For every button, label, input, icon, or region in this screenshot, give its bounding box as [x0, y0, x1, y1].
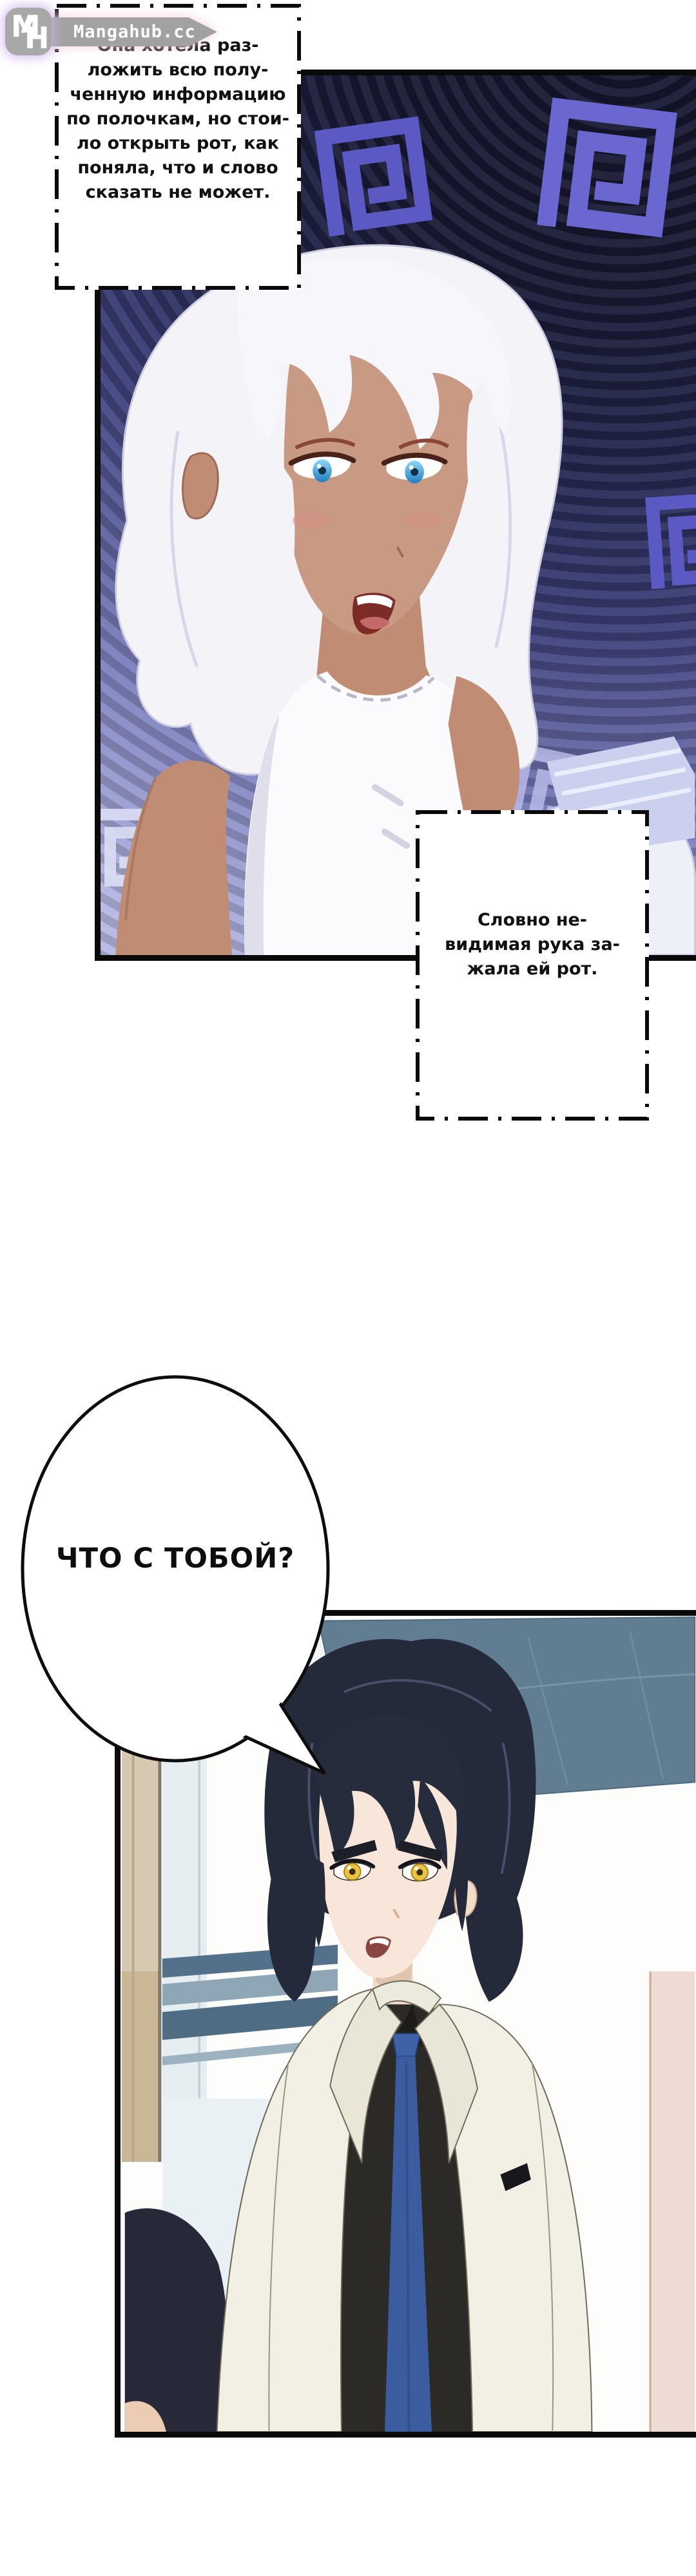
narration-box-2-text: Словно не- видимая рука за- жала ей рот.	[416, 790, 649, 1100]
manga-page: Она хотела раз- ложить всю полу- ченную …	[0, 0, 696, 2576]
caption-line: Словно не-	[478, 908, 587, 933]
logo-letter-h: H	[24, 23, 50, 53]
caption-line: по полочкам, но стои-	[66, 107, 289, 131]
narration-box-1: Она хотела раз- ложить всю полу- ченную …	[55, 4, 301, 290]
narration-box-1-text: Она хотела раз- ложить всю полу- ченную …	[55, 4, 301, 319]
caption-line: ченную информацию	[70, 82, 285, 107]
caption-line: поняла, что и слово	[77, 156, 278, 180]
narration-box-2: Словно не- видимая рука за- жала ей рот.	[416, 810, 649, 1121]
caption-line: жала ей рот.	[467, 957, 598, 981]
caption-line: ло открыть рот, как	[77, 131, 279, 156]
site-logo-icon: M H	[5, 8, 52, 55]
pink-wall	[649, 1971, 695, 2432]
caption-line: ложить всю полу-	[88, 58, 269, 82]
speech-bubble-text: ЧТО С ТОБОЙ?	[46, 1542, 304, 1575]
caption-line: сказать не может.	[86, 180, 271, 205]
speech-bubble	[0, 1352, 387, 1816]
caption-line: видимая рука за-	[445, 933, 620, 957]
